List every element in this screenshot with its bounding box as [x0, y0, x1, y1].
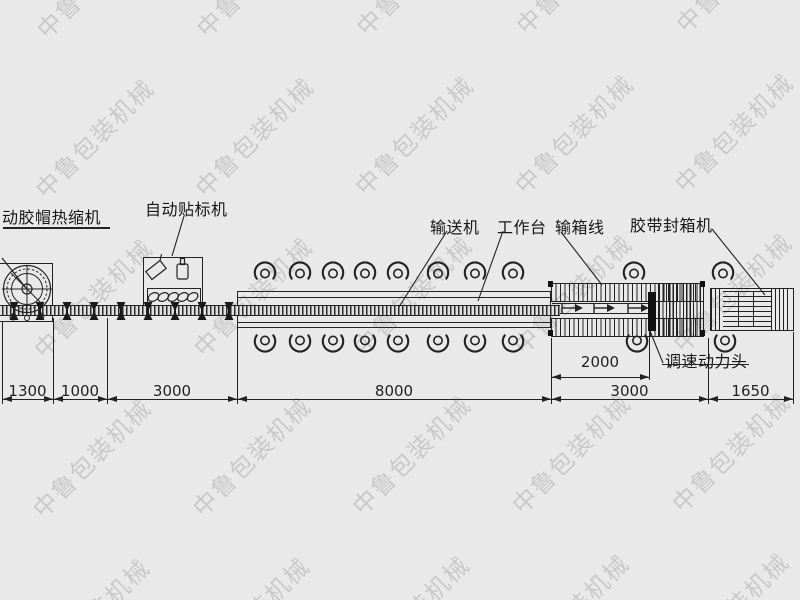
watermark-text: 中鲁包装机械 [507, 0, 642, 41]
roller-mid-line-top [552, 303, 650, 304]
watermark-text: 中鲁包装机械 [665, 64, 800, 199]
roller-mid-line-bottom [552, 313, 650, 314]
watermark-text: 中鲁包装机械 [23, 389, 158, 524]
sealer-body [710, 288, 794, 331]
sealer-divider [738, 291, 739, 327]
label-box-line: 输箱线 [555, 214, 605, 238]
roller-end-cap [548, 330, 553, 336]
dim-arrow [552, 374, 561, 380]
dim-arrow [98, 396, 107, 402]
watermark-text: 中鲁包装机械 [503, 385, 638, 520]
watermark-text: 中鲁包装机械 [341, 546, 476, 600]
dim-label: 8000 [375, 382, 413, 400]
watermark-text: 中鲁包装机械 [501, 545, 636, 600]
label-shrink-underline [3, 227, 110, 229]
watermark-text: 中鲁包装机械 [183, 388, 318, 523]
dim-arrow [640, 374, 649, 380]
sealer-left-rollers [711, 289, 723, 330]
label-power-head: 调速动力头 [665, 348, 748, 372]
label-labeler: 自动贴标机 [145, 196, 228, 220]
extension-line [2, 322, 3, 404]
sealer-divider [753, 291, 754, 327]
watermark-text: 中鲁包装机械 [187, 0, 322, 44]
watermark-text: 中鲁包装机械 [27, 0, 162, 45]
dim-label: 1000 [61, 382, 99, 400]
worktable-inner-line-top [237, 297, 551, 298]
watermark-text: 中鲁包装机械 [0, 71, 1, 206]
watermark-text: 中鲁包装机械 [661, 544, 796, 600]
dim-arrow [238, 396, 247, 402]
watermark-text: 中鲁包装机械 [22, 549, 157, 600]
roller-end-cap [548, 281, 553, 287]
watermark-text: 中鲁包装机械 [343, 387, 478, 522]
labeler-auger-box [147, 288, 201, 306]
machinery-layout-drawing: 中鲁包装机械中鲁包装机械中鲁包装机械中鲁包装机械中鲁包装机械中鲁包装机械中鲁包装… [0, 0, 800, 600]
label-worktable: 工作台 [497, 214, 547, 238]
watermark-text: 中鲁包装机械 [0, 0, 3, 46]
label-conveyor: 输送机 [430, 214, 480, 238]
watermark-text: 中鲁包装机械 [346, 67, 481, 202]
watermark-text: 中鲁包装机械 [182, 548, 317, 600]
dim-label: 3000 [153, 382, 191, 400]
watermark-text: 中鲁包装机械 [186, 68, 321, 203]
extension-line [551, 338, 552, 404]
dim-label: 2000 [581, 353, 619, 371]
dim-arrow [709, 396, 718, 402]
extension-line [649, 331, 650, 380]
sealer-mid-belt [723, 291, 771, 327]
dim-arrow [228, 396, 237, 402]
dim-arrow [108, 396, 117, 402]
dim-arrow [699, 396, 708, 402]
dim-arrow [3, 396, 12, 402]
extension-line [53, 318, 54, 404]
dim-label: 3000 [610, 382, 648, 400]
dim-arrow [542, 396, 551, 402]
worktable-inner-line-bottom [237, 322, 551, 323]
extension-line [793, 332, 794, 404]
dim-label: 1300 [8, 382, 46, 400]
chain-conveyor [0, 305, 560, 316]
watermark-text: 中鲁包装机械 [347, 0, 482, 42]
watermark-text: 中鲁包装机械 [667, 0, 800, 39]
dim-arrow [552, 396, 561, 402]
dimension-line-sub [551, 377, 649, 378]
extension-line [237, 328, 238, 404]
roller-end-cap [700, 281, 705, 287]
dim-arrow [784, 396, 793, 402]
sealer-right-rollers [771, 289, 789, 330]
extension-line [107, 318, 108, 404]
powered-roller-section [658, 283, 704, 337]
dim-arrow [54, 396, 63, 402]
watermark-text: 中鲁包装机械 [26, 70, 161, 205]
watermark-text: 中鲁包装机械 [505, 66, 640, 201]
roller-end-cap [700, 330, 705, 336]
label-shrink-machine: 动胶帽热缩机 [2, 204, 101, 228]
label-power-head-underline [662, 364, 749, 365]
speed-power-head [648, 292, 656, 331]
dim-arrow [44, 396, 53, 402]
label-sealer: 胶带封箱机 [630, 212, 713, 236]
dim-label: 1650 [731, 382, 769, 400]
watermark-text: 中鲁包装机械 [662, 384, 797, 519]
